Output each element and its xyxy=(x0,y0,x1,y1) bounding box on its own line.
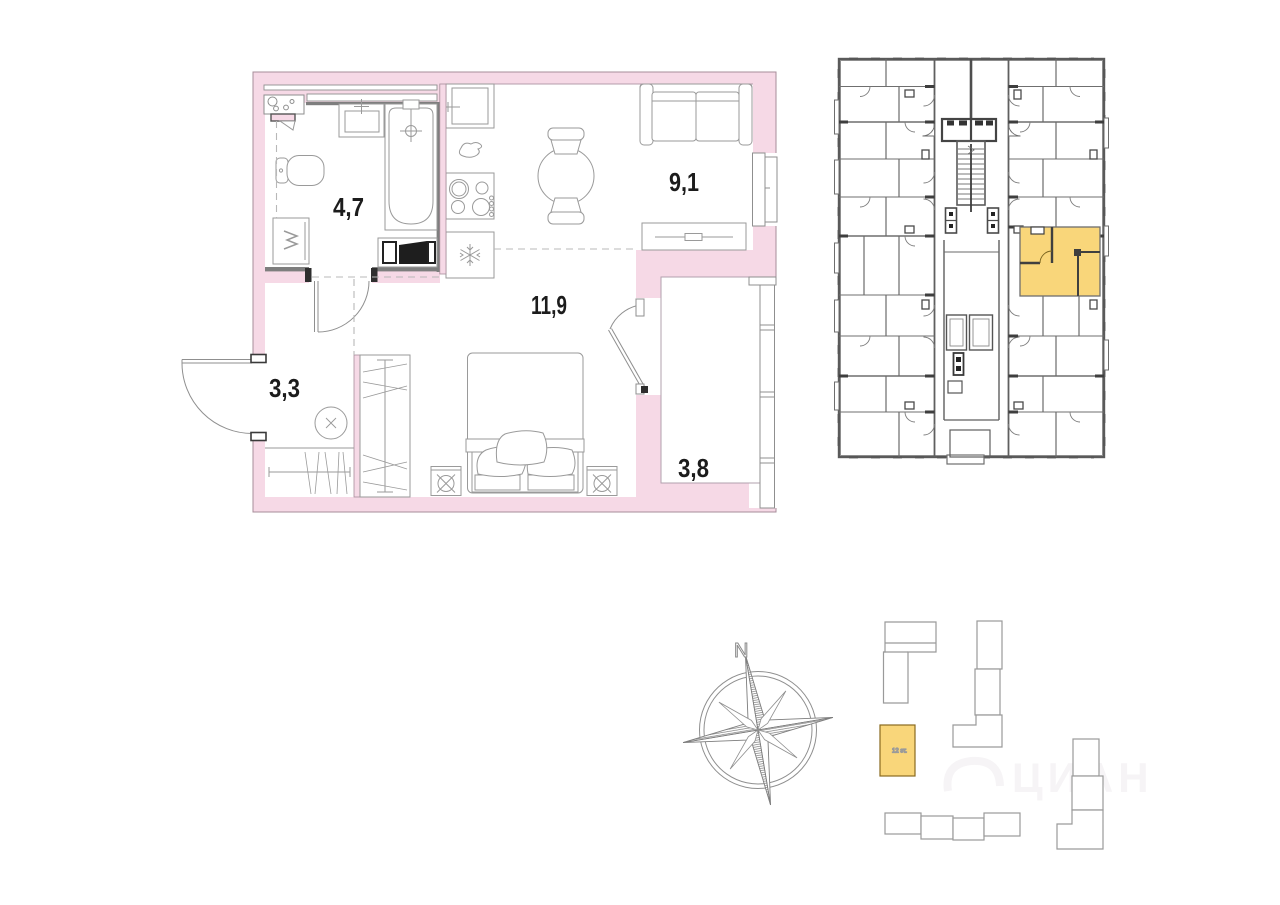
svg-text:3,8: 3,8 xyxy=(678,453,709,483)
svg-text:3,3: 3,3 xyxy=(269,373,300,403)
svg-text:4,7: 4,7 xyxy=(333,192,364,222)
svg-text:N: N xyxy=(734,640,748,662)
svg-text:11,9: 11,9 xyxy=(531,290,567,320)
svg-text:12 эт.: 12 эт. xyxy=(892,749,907,755)
svg-text:9,1: 9,1 xyxy=(669,167,699,197)
